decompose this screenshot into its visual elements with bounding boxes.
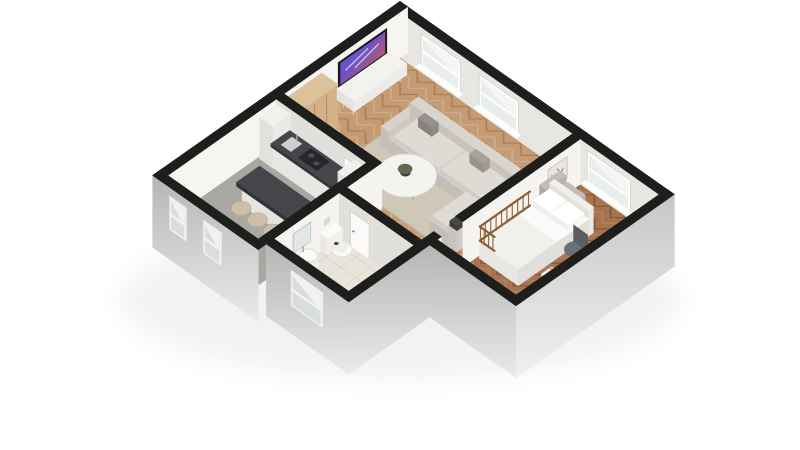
burner-1 xyxy=(308,153,314,157)
bathroom-door-handle xyxy=(352,230,355,232)
stool-2-seat xyxy=(248,213,268,227)
floor-plan-stage xyxy=(0,0,800,450)
stool-1-seat xyxy=(231,201,251,215)
toilet-hinge xyxy=(334,242,339,245)
bed-headboard-front xyxy=(589,207,594,236)
burner-2 xyxy=(313,161,319,165)
floor-plan-3d-render xyxy=(0,0,800,450)
plant xyxy=(398,164,413,174)
